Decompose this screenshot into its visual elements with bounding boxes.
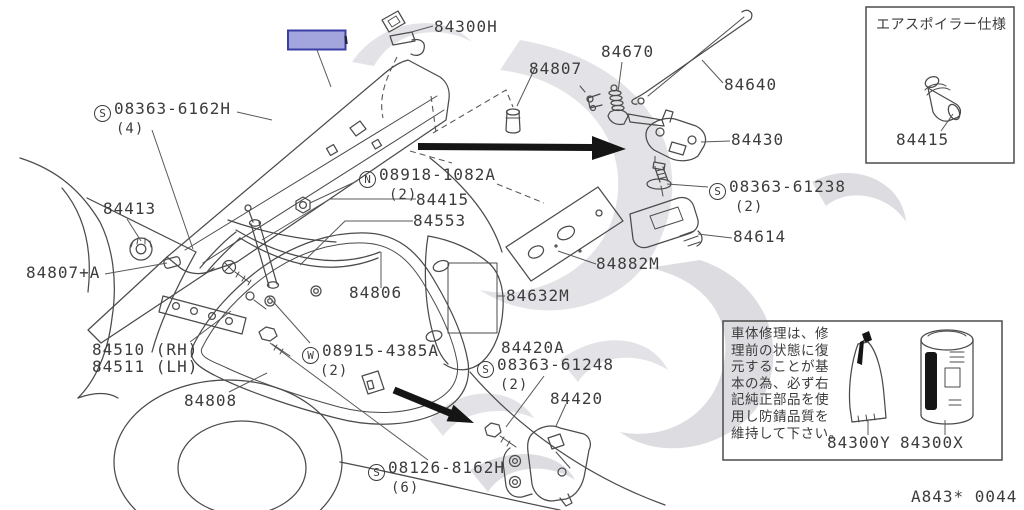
circled-s-icon: S (477, 361, 494, 378)
fastener-qty: (2) (735, 200, 846, 215)
part-label-84511-lh: 84511 (LH) (92, 359, 198, 376)
fastener-label-08363-6162h: S08363-6162H (4) (94, 101, 231, 137)
part-label-84640: 84640 (724, 77, 777, 94)
part-label-84632m: 84632M (506, 288, 570, 305)
parts-diagram-page: 84300H S08363-6162H (4) 84413 84807+A 84… (0, 0, 1024, 510)
fastener-label-08363-61238: S08363-61238 (2) (709, 179, 846, 215)
hinge-and-stay-drawing (130, 197, 380, 356)
part-label-84413: 84413 (103, 201, 156, 218)
fastener-label-08915-4385a: W08915-4385A (2) (302, 343, 439, 379)
part-label-84553: 84553 (413, 213, 466, 230)
part-label-84614: 84614 (733, 229, 786, 246)
part-label-84808: 84808 (184, 393, 237, 410)
part-label-84300y: 84300Y (827, 435, 891, 452)
part-label-84420: 84420 (550, 391, 603, 408)
circled-w-icon: W (302, 347, 319, 364)
repair-note-text: 車体修理は、修 理前の状態に復 元することが基 本の為、必ず右 記純正部品を使 … (731, 326, 843, 442)
fastener-label-08126-8162h: S08126-8162H (6) (368, 460, 505, 496)
arrow-right-icon (418, 136, 626, 160)
part-label-84882m: 84882M (596, 256, 660, 273)
circled-s-icon: S (94, 105, 111, 122)
highlight-marker (288, 31, 347, 88)
spray-can-drawing (921, 330, 973, 424)
circled-n-icon: N (359, 171, 376, 188)
part-label-84806: 84806 (349, 285, 402, 302)
fastener-label-08363-61248: S08363-61248 (2) (477, 357, 614, 393)
fastener-qty: (4) (116, 122, 231, 137)
fastener-qty: (2) (320, 364, 439, 379)
part-label-84300x: 84300X (900, 435, 964, 452)
part-label-84807: 84807 (529, 61, 582, 78)
part-label-84670: 84670 (601, 44, 654, 61)
part-label-84430: 84430 (731, 132, 784, 149)
part-label-84807-plus-a: 84807+A (26, 265, 100, 282)
fastener-qty: (6) (391, 481, 505, 496)
circled-s-icon: S (709, 183, 726, 200)
touchup-tube-drawing (849, 331, 886, 422)
circled-s-icon: S (368, 464, 385, 481)
part-label-84300h: 84300H (434, 19, 498, 36)
spoiler-box-part-label-84415: 84415 (896, 132, 949, 149)
diagram-code: A843* 0044 (911, 489, 1017, 506)
spoiler-box-title: エアスポイラー仕様 (876, 18, 1007, 33)
part-label-84415: 84415 (416, 192, 469, 209)
